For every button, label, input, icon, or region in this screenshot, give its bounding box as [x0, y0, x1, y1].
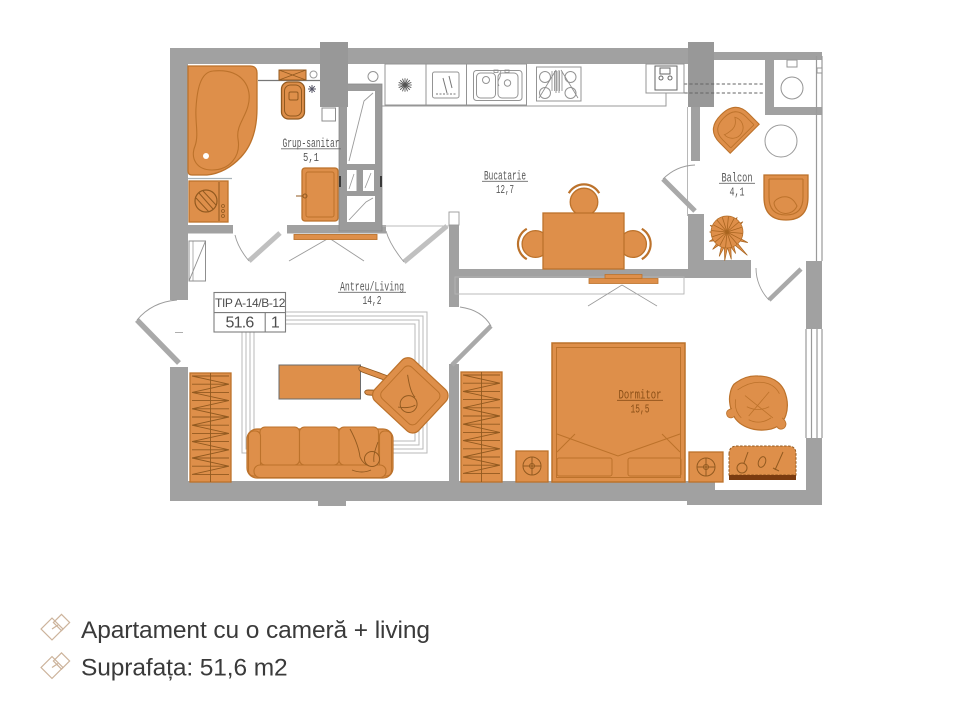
svg-text:TIP A-14/B-12: TIP A-14/B-12 — [215, 296, 286, 310]
svg-text:4,1: 4,1 — [730, 187, 745, 200]
svg-text:Apartament cu o cameră + livin: Apartament cu o cameră + living — [81, 617, 430, 644]
svg-text:12,7: 12,7 — [496, 184, 514, 197]
svg-text:14,2: 14,2 — [363, 295, 382, 308]
svg-text:1: 1 — [271, 314, 280, 331]
svg-text:15,5: 15,5 — [631, 404, 650, 417]
svg-text:51.6: 51.6 — [226, 314, 255, 331]
svg-text:Suprafața: 51,6 m2: Suprafața: 51,6 m2 — [81, 655, 288, 682]
svg-text:5,1: 5,1 — [303, 152, 319, 165]
